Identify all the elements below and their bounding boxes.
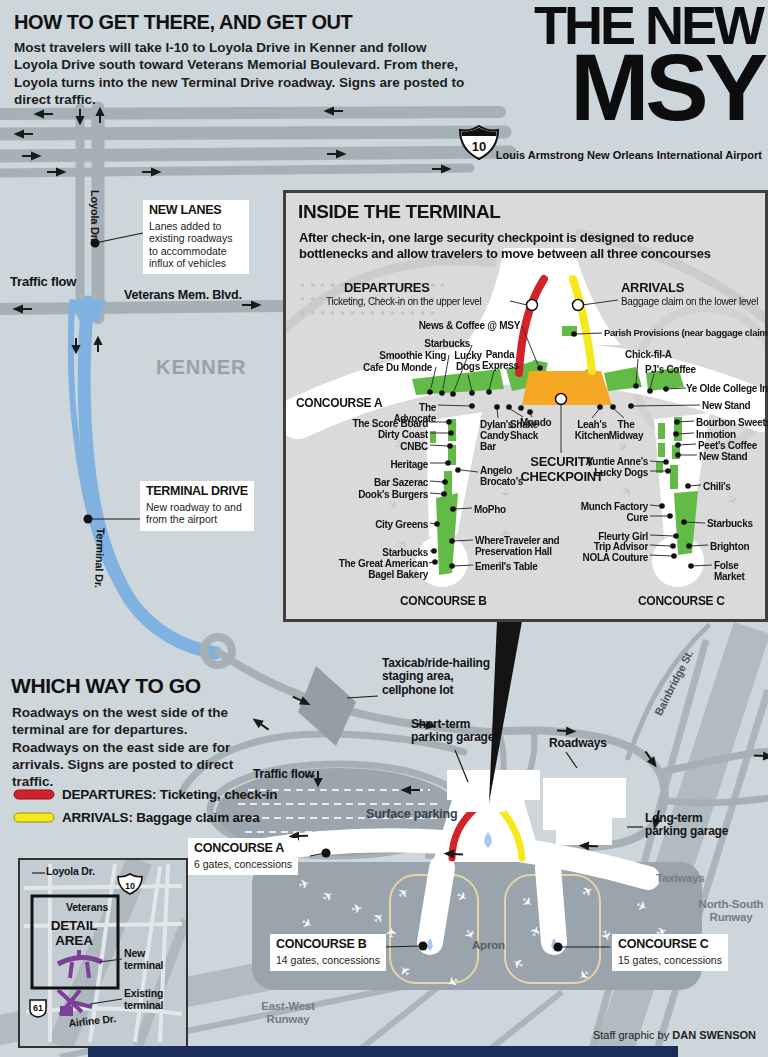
shop-label-lucky-dogs-a: Lucky Dogs [452, 350, 484, 372]
inset-concourse-c: CONCOURSE C [638, 595, 725, 608]
shop-label-score-board: The Score Board [344, 418, 428, 429]
shop-label-panda-express: Panda Express [482, 349, 518, 371]
svg-text:✈: ✈ [350, 901, 363, 917]
terminal-drive-road [70, 300, 216, 653]
detail-us61-shield: 61 [30, 1000, 46, 1017]
shop-label-city-greens: City Greens [344, 519, 428, 530]
page-title: HOW TO GET THERE, AND GET OUT [14, 11, 352, 34]
shop-label-mopho: MoPho [474, 504, 506, 515]
concourse-c-sub: 15 gates, concessions [618, 954, 722, 966]
concourse-a-name: CONCOURSE A [194, 842, 292, 856]
shop-label-pjs: PJ's Coffee [645, 364, 696, 375]
infographic-page: ✈ ✈ ✈ ✈ ✈ ✈ ✈ ✈ ✈ ✈ ✈ ✈ ✈ ✈ ✈ ✈ ✈ ✈ ✈ [0, 0, 768, 1057]
detail-loyola-label: Loyola Dr. [46, 866, 95, 878]
inset-concourse-b: CONCOURSE B [400, 595, 487, 608]
shop-label-smoothie-king: Smoothie King [376, 350, 446, 361]
shop-label-inmotion: Inmotion [696, 429, 736, 440]
which-way-title: WHICH WAY TO GO [11, 674, 201, 698]
shop-label-starbucks-c: Starbucks [707, 518, 753, 529]
concourse-b-sub: 14 gates, concessions [276, 954, 380, 966]
shop-label-peets: Peet's Coffee [698, 440, 757, 451]
concourse-b-name: CONCOURSE B [276, 938, 380, 952]
terminal-drive-callout: TERMINAL DRIVE New roadway to and from t… [140, 481, 254, 531]
svg-text:10: 10 [125, 881, 135, 891]
terminal-dr-label: Terminal Dr. [93, 528, 107, 589]
which-way-body: Roadways on the west side of the termina… [12, 704, 252, 790]
legend-arrivals-label: ARRIVALS: Baggage claim area [62, 810, 259, 825]
kenner-label: KENNER [156, 356, 246, 379]
detail-area-inset: 10 61 Loyola Dr. Veterans DETAIL AREA Ne… [18, 858, 188, 1048]
shop-label-parish: Parish Provisions (near baggage claim) [604, 328, 768, 339]
legend-departures-label: DEPARTURES: Ticketing, check-in [62, 787, 277, 802]
surface-parking-label: Surface parking [366, 807, 457, 821]
inset-title: INSIDE THE TERMINAL [298, 201, 500, 222]
apron-label: Apron [472, 939, 505, 952]
terminal-drive-body: New roadway to and from the airport [146, 501, 248, 526]
terminal-drive-title: TERMINAL DRIVE [146, 485, 248, 499]
shop-label-wheretraveler: WhereTraveler and Preservation Hall [475, 535, 591, 557]
departures-sub: Ticketing, Check-in on the upper level [326, 296, 506, 307]
ew-runway-label: East-West Runway [250, 1000, 326, 1026]
short-term-label: Short-term parking garage [411, 718, 495, 745]
intro-paragraph: Most travelers will take I-10 to Loyola … [14, 39, 466, 108]
shop-label-cure: Cure [604, 512, 648, 523]
ns-runway-label: North-South Runway [696, 898, 766, 924]
svg-text:✈: ✈ [618, 482, 636, 501]
shop-label-new-stand-2: New Stand [699, 451, 747, 462]
shop-label-starbucks-a: Starbucks [404, 338, 470, 349]
masthead: THE NEW MSY Louis Armstrong New Orleans … [460, 0, 766, 170]
concourse-b-callout: CONCOURSE B 14 gates, concessions [270, 934, 386, 971]
svg-text:✈: ✈ [384, 927, 399, 938]
shop-label-cnbc: CNBC [344, 441, 428, 452]
shop-label-cafe-du-monde: Cafe Du Monde [360, 362, 432, 373]
concourse-a-callout: CONCOURSE A 6 gates, concessions [188, 838, 298, 875]
shop-label-bagel-bakery: The Great American Bagel Bakery [332, 558, 428, 580]
masthead-line2: MSY [570, 40, 764, 135]
detail-area-label: DETAIL AREA [36, 918, 112, 948]
detail-new-terminal-label: New terminal [124, 948, 176, 972]
detail-veterans-label: Veterans [66, 902, 108, 914]
legend-swatches [13, 788, 63, 834]
shop-label-chilis: Chili's [703, 481, 731, 492]
new-lanes-title: NEW LANES [149, 204, 243, 218]
svg-text:61: 61 [33, 1003, 43, 1013]
detail-existing-terminal-label: Existing terminal [124, 988, 180, 1012]
credit-name: DAN SWENSON [672, 1029, 756, 1041]
traffic-flow-label-lower: Traffic flow [253, 768, 314, 781]
shop-label-trip-advisor: Trip Advisor [582, 541, 648, 552]
shop-label-mondo: Mondo [520, 417, 551, 428]
shop-label-dooks: Dook's Burgers [344, 489, 428, 500]
shop-label-midway: The Midway [604, 419, 648, 441]
departures-title: DEPARTURES [344, 281, 430, 296]
concourse-c-callout: CONCOURSE C 15 gates, concessions [612, 934, 728, 971]
svg-text:✈: ✈ [498, 488, 513, 499]
shop-label-lucky-dogs-c: Lucky Dogs [594, 467, 648, 478]
traffic-flow-label-upper: Traffic flow [10, 275, 76, 290]
shop-label-angelo: Angelo Brocato's [480, 465, 532, 487]
shop-label-heritage: Heritage [344, 459, 428, 470]
svg-text:✈: ✈ [723, 492, 741, 509]
taxiways-label: Taxiways [656, 872, 705, 885]
shop-label-dirty-coast: Dirty Coast [344, 429, 428, 440]
new-lanes-body: Lanes added to existing roadways to acco… [149, 220, 243, 270]
veterans-blvd-label: Veterans Mem. Blvd. [124, 288, 242, 302]
roadways-label: Roadways [549, 737, 607, 750]
masthead-subtitle: Louis Armstrong New Orleans Internationa… [496, 149, 762, 161]
footer-bar [88, 1046, 678, 1057]
inside-terminal-inset: ✈ ✈ ✈ ✈ ✈ ✈ ✈ ✈ ✈ [283, 190, 768, 622]
arrivals-sub: Baggage claim on the lower level [621, 296, 768, 307]
arrivals-title: ARRIVALS [621, 281, 684, 296]
inset-concourse-a: CONCOURSE A [296, 397, 382, 410]
loyola-dr-label: Loyola Dr. [89, 190, 101, 241]
shop-label-ye-olde: Ye Olde College Inn [686, 383, 768, 394]
shop-label-bar-sazerac: Bar Sazerac [344, 477, 428, 488]
shop-label-nola-couture: NOLA Couture [576, 552, 648, 563]
shop-label-folse: Folse Market [714, 560, 754, 582]
shop-label-starbucks-b: Starbucks [344, 547, 428, 558]
credit-prefix: Staff graphic by [593, 1029, 672, 1041]
concourse-a-sub: 6 gates, concessions [194, 858, 292, 870]
shop-label-munch-factory: Munch Factory [574, 501, 648, 512]
taxicab-label: Taxicab/ride-hailing staging area, cellp… [382, 657, 492, 697]
long-term-label: Long-term parking garage [645, 812, 731, 839]
shop-label-brighton: Brighton [710, 541, 749, 552]
shop-label-new-stand-1: New Stand [702, 400, 750, 411]
concourse-c-name: CONCOURSE C [618, 938, 722, 952]
shop-label-emerils: Emeril's Table [475, 561, 537, 572]
new-lanes-callout: NEW LANES Lanes added to existing roadwa… [143, 200, 249, 274]
shop-label-news-coffee: News & Coffee @ MSY [406, 320, 520, 331]
shop-label-bourbon-sweets: Bourbon Sweets [696, 417, 768, 428]
inset-subtitle: After check-in, one large security check… [299, 230, 751, 263]
shop-label-auntie-annes: Auntie Anne's [580, 456, 648, 467]
credit-line: Staff graphic by DAN SWENSON [593, 1029, 756, 1041]
shop-label-chick-fil-a: Chick-fil-A [625, 349, 672, 360]
